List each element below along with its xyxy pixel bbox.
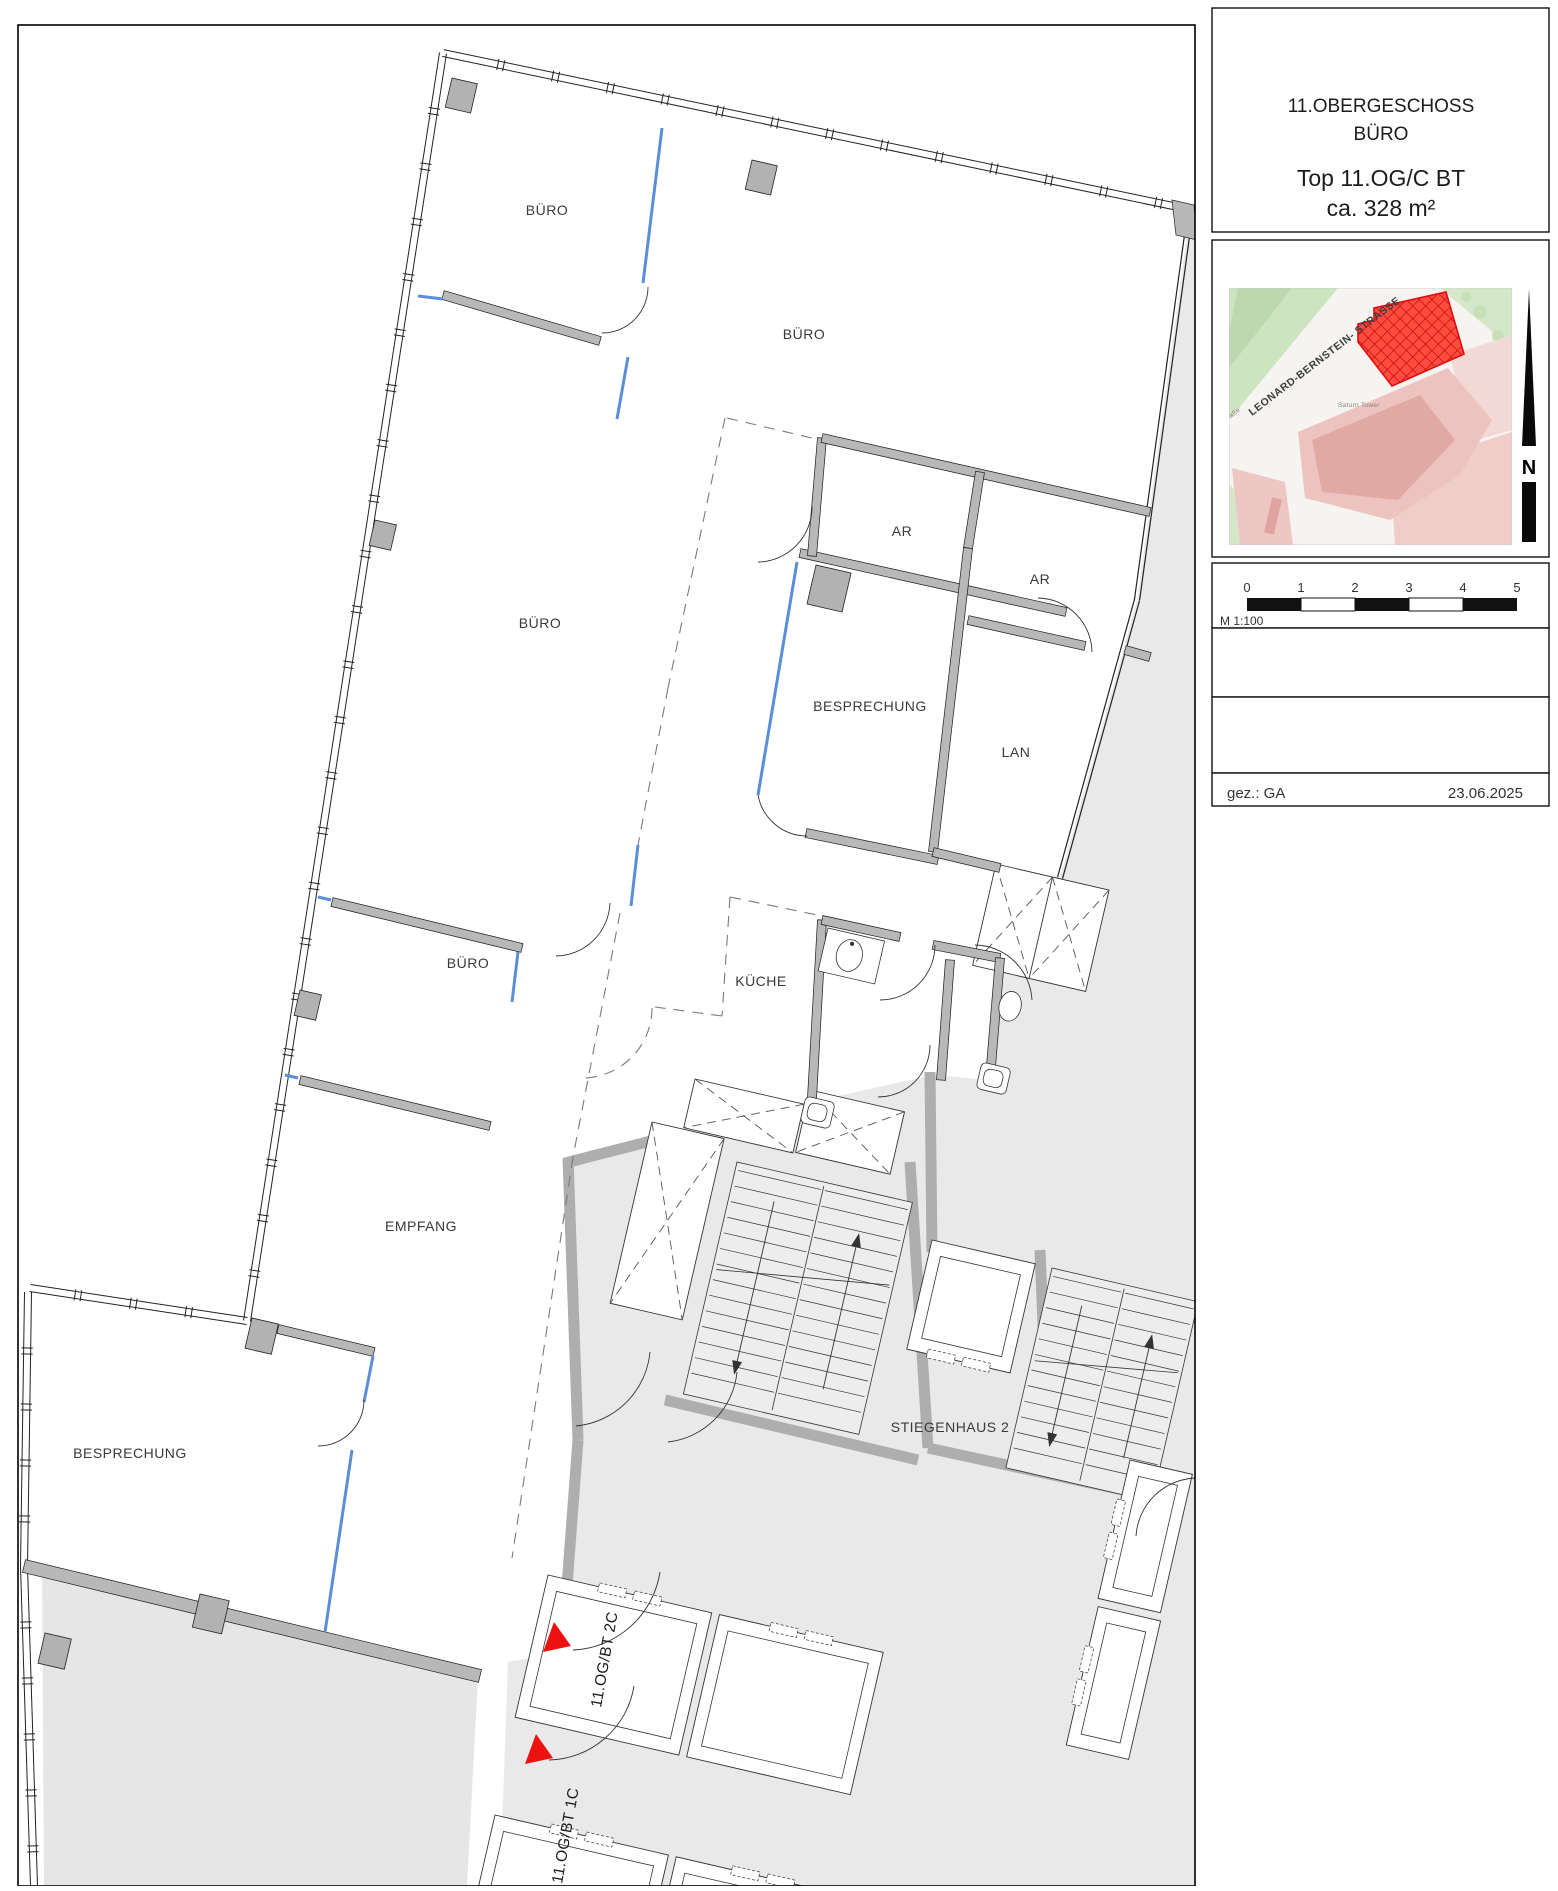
sheet-title-line2: BÜRO bbox=[1354, 124, 1409, 145]
north-label: N bbox=[1522, 457, 1536, 479]
sheet-title-line1: 11.OBERGESCHOSS bbox=[1288, 96, 1475, 117]
room-label-buero-2: BÜRO bbox=[783, 325, 825, 342]
room-label-buero-4: BÜRO bbox=[447, 954, 489, 971]
empty-box-1 bbox=[1212, 628, 1549, 697]
empty-box-2 bbox=[1212, 697, 1549, 773]
room-label-stiegenhaus: STIEGENHAUS 2 bbox=[891, 1419, 1010, 1435]
scale-tick: 2 bbox=[1351, 580, 1358, 595]
date: 23.06.2025 bbox=[1448, 785, 1523, 802]
scale-tick: 5 bbox=[1513, 580, 1520, 595]
room-label-besprechung-2: BESPRECHUNG bbox=[73, 1445, 187, 1461]
room-label-buero-3: BÜRO bbox=[519, 614, 561, 631]
floorplan-sheet: 11.OG/BT 2C 11.OG/BT 1C BÜRO BÜRO BÜRO B… bbox=[0, 0, 1558, 1886]
floor-plan: 11.OG/BT 2C 11.OG/BT 1C BÜRO BÜRO BÜRO B… bbox=[19, 50, 1198, 1886]
room-label-besprechung-1: BESPRECHUNG bbox=[813, 698, 927, 714]
room-label-ar-2: AR bbox=[1030, 571, 1050, 587]
room-label-ar-1: AR bbox=[892, 523, 912, 539]
room-label-kueche: KÜCHE bbox=[735, 972, 787, 989]
unit-name: Top 11.OG/C BT bbox=[1297, 165, 1465, 191]
map-building-label: Saturn Tower bbox=[1338, 402, 1380, 409]
corner-poche bbox=[1172, 200, 1197, 240]
title-panel: 11.OBERGESCHOSS BÜRO Top 11.OG/C BT ca. … bbox=[1212, 8, 1549, 806]
scale-label: M 1:100 bbox=[1220, 614, 1264, 628]
scale-tick: 0 bbox=[1243, 580, 1250, 595]
site-map: LEONARD-BERNSTEIN- STRASSE Saturn Tower … bbox=[1228, 288, 1512, 545]
room-label-buero-1: BÜRO bbox=[526, 201, 568, 218]
room-label-lan: LAN bbox=[1002, 744, 1031, 760]
scale-tick: 4 bbox=[1459, 580, 1466, 595]
unit-area: ca. 328 m² bbox=[1327, 195, 1436, 221]
scale-tick: 1 bbox=[1297, 580, 1304, 595]
scale-tick: 3 bbox=[1405, 580, 1412, 595]
room-label-empfang: EMPFANG bbox=[385, 1218, 457, 1234]
drawn-by: gez.: GA bbox=[1227, 785, 1285, 802]
